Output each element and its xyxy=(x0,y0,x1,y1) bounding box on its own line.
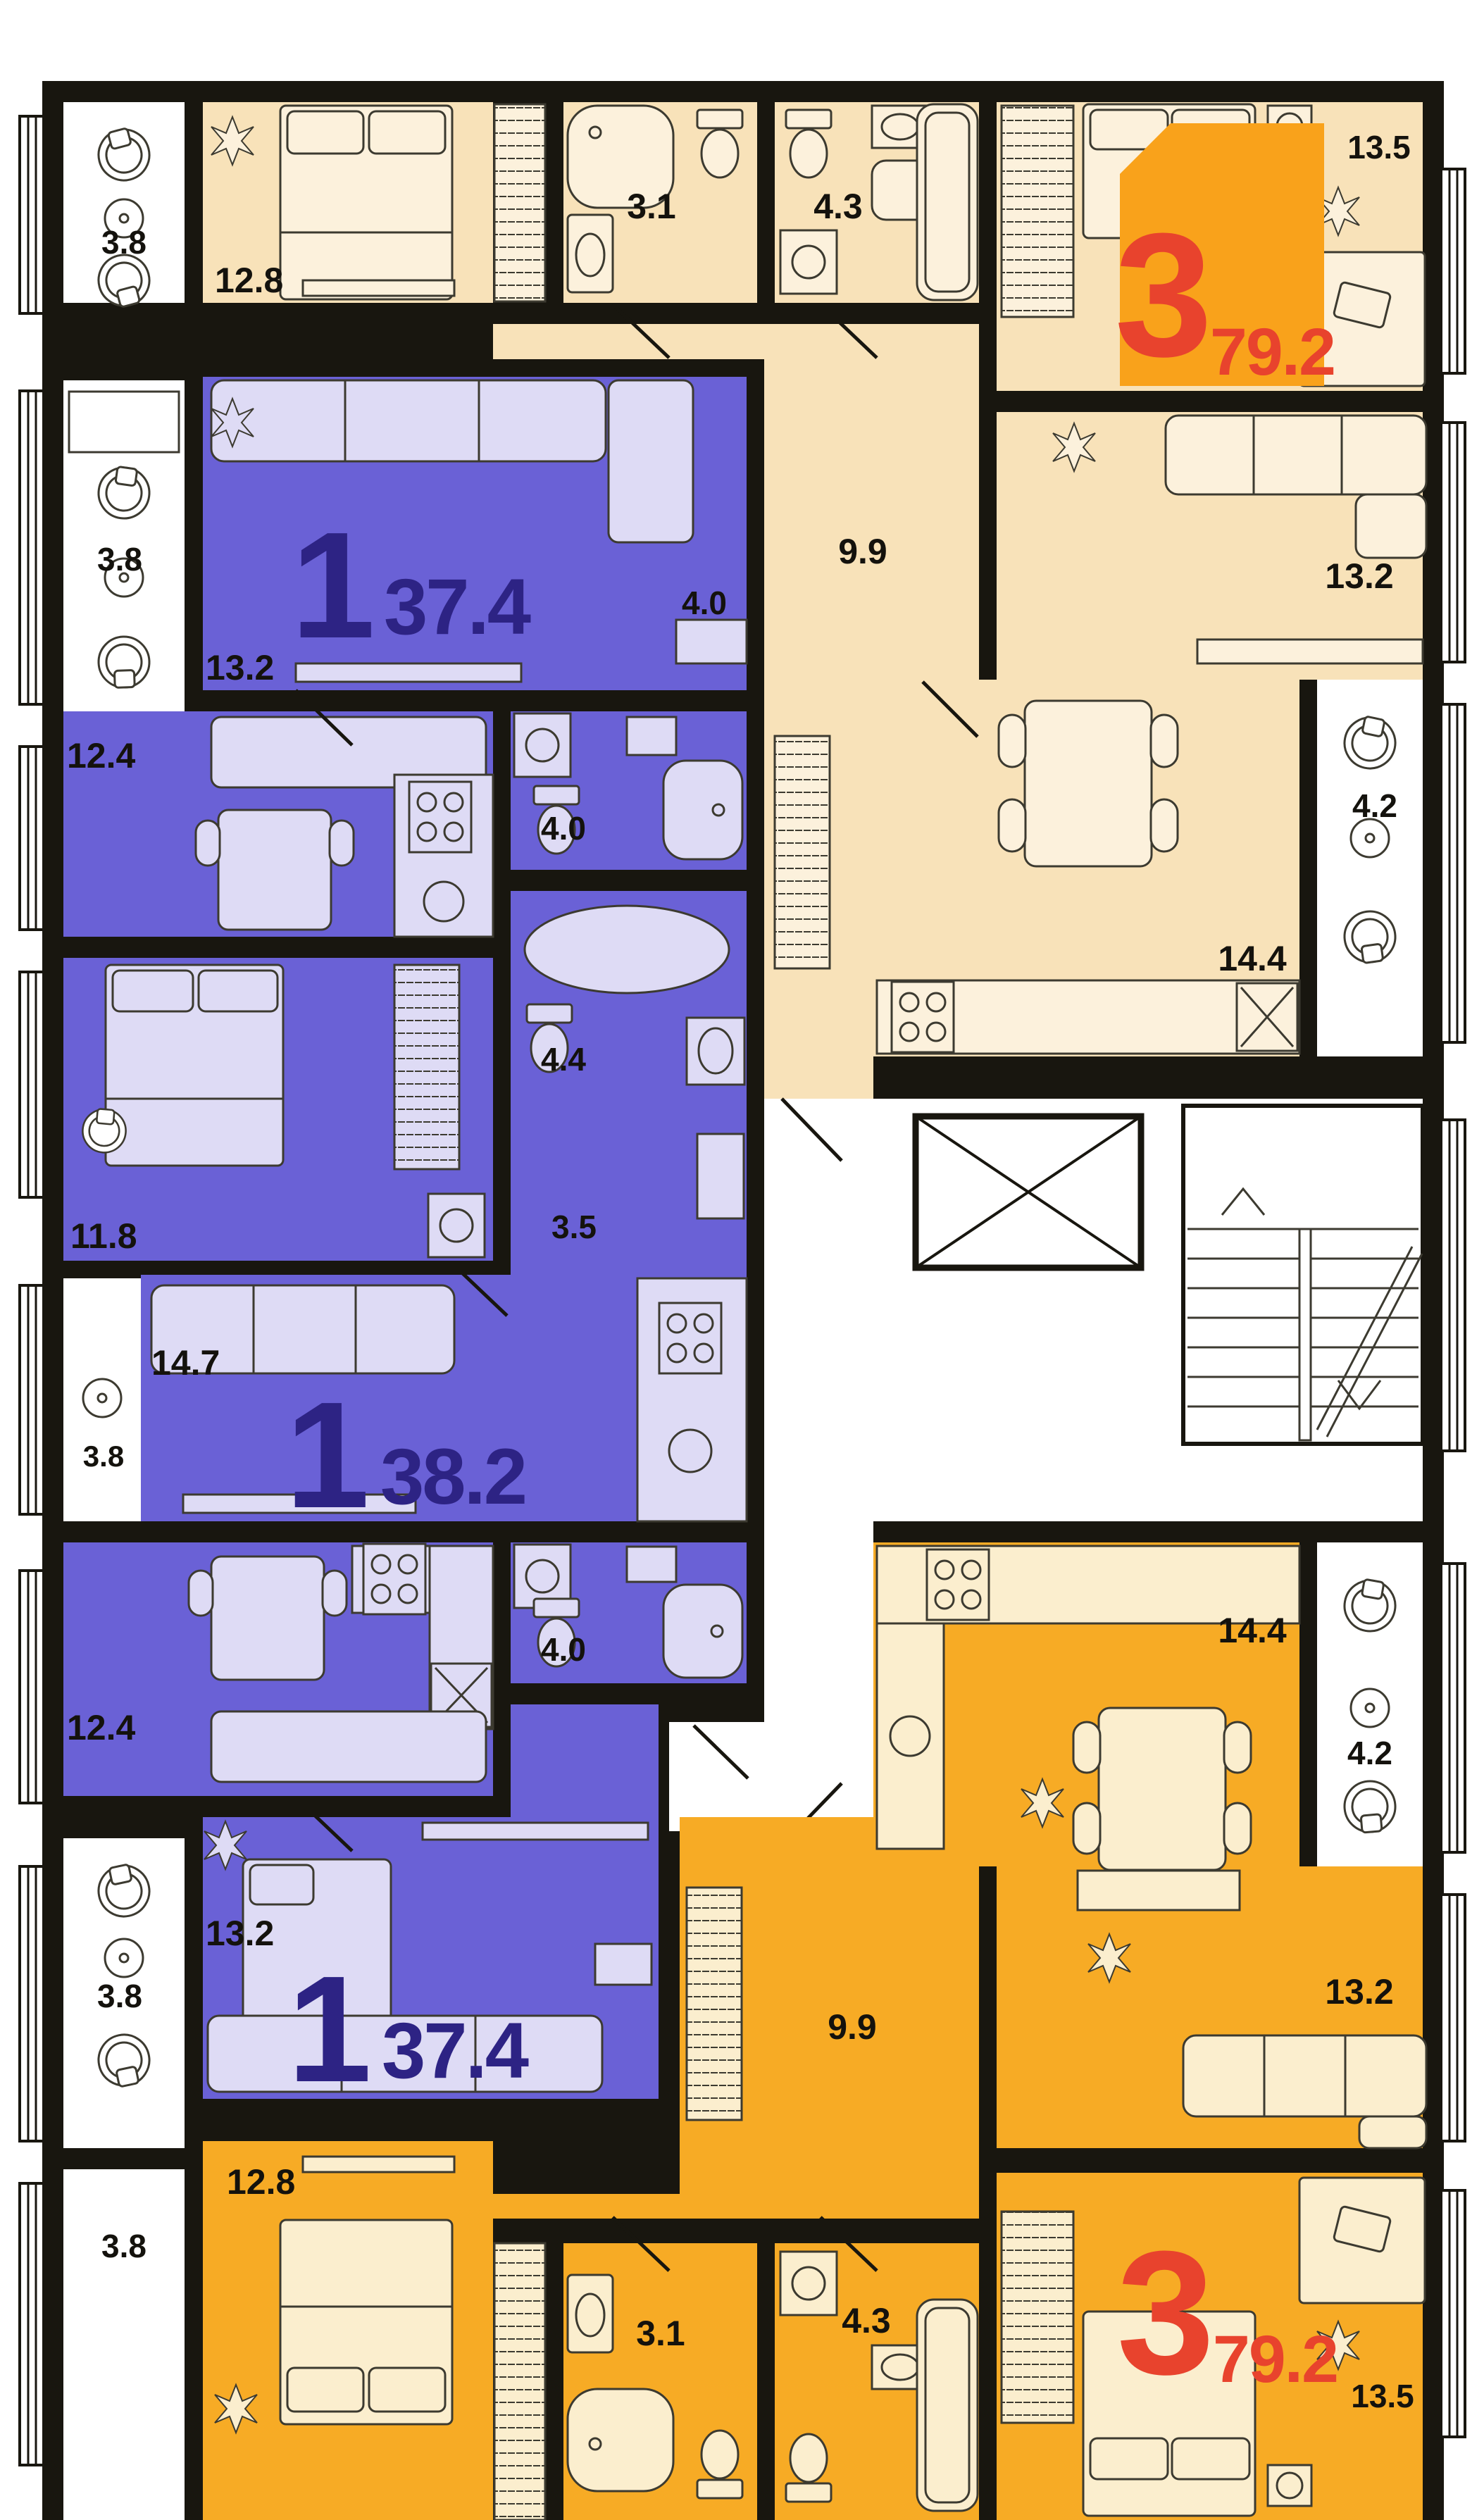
apartment-type-badge[interactable]: 3 79.2 xyxy=(1114,123,1334,393)
apartment-area: 38.2 xyxy=(380,1433,525,1521)
apartment-area: 79.2 xyxy=(1213,2322,1338,2397)
elevator xyxy=(916,1116,1141,1268)
room-hallway xyxy=(680,1817,873,1866)
apartment-type: 1 xyxy=(291,500,371,670)
apartment-area: 37.4 xyxy=(384,563,531,651)
area-label: 3.8 xyxy=(83,1440,124,1473)
floor-plan: 3.8 12.8 3.1 4.3 13.5 9.9 13.2 14.4 4.2 … xyxy=(0,0,1484,2520)
area-label: 13.2 xyxy=(1325,556,1393,596)
facade-windows-left xyxy=(20,116,44,2465)
area-label: 13.2 xyxy=(206,1914,274,1953)
area-label: 13.2 xyxy=(1325,1972,1393,2011)
area-label: 3.8 xyxy=(101,224,146,261)
closet xyxy=(494,2243,545,2520)
area-label: 12.4 xyxy=(67,736,136,775)
area-label: 4.3 xyxy=(842,2301,891,2340)
area-label: 4.0 xyxy=(541,810,586,847)
room-balcony xyxy=(63,2169,185,2520)
tv-stand xyxy=(303,280,454,296)
area-label: 4.0 xyxy=(682,585,727,621)
bed xyxy=(280,106,452,299)
area-label: 4.0 xyxy=(541,1631,586,1668)
area-label: 13.5 xyxy=(1351,2378,1414,2414)
room-hallway xyxy=(493,2194,873,2219)
area-label: 3.8 xyxy=(97,541,142,578)
apartment-1-room-middle[interactable]: 4.4 11.8 3.5 14.7 3.8 1 38.2 xyxy=(63,891,747,1540)
apartment-type: 1 xyxy=(287,1944,368,2114)
area-label: 9.9 xyxy=(828,2007,877,2047)
area-label: 14.4 xyxy=(1218,939,1287,978)
area-label: 3.8 xyxy=(101,2228,146,2264)
area-label: 14.4 xyxy=(1218,1611,1287,1650)
area-label: 4.2 xyxy=(1347,1735,1392,1771)
area-label: 4.4 xyxy=(541,1041,586,1078)
area-label: 12.8 xyxy=(215,261,283,300)
area-label: 3.5 xyxy=(551,1209,597,1245)
area-label: 13.5 xyxy=(1347,129,1411,166)
area-label: 3.8 xyxy=(97,1978,142,2014)
vestibule xyxy=(669,1722,764,1831)
apartment-1-room-bottom[interactable]: 12.4 4.0 13.2 3.8 1 37.4 xyxy=(63,1542,747,2148)
area-label: 3.1 xyxy=(627,187,676,226)
area-label: 13.2 xyxy=(206,648,274,687)
area-label: 14.7 xyxy=(151,1343,220,1383)
apartment-type: 1 xyxy=(285,1370,366,1540)
area-label: 4.2 xyxy=(1352,787,1397,824)
hall-wardrobe xyxy=(687,1888,742,2120)
area-label: 9.9 xyxy=(838,532,887,571)
apartment-area: 79.2 xyxy=(1210,315,1335,389)
closet xyxy=(494,104,545,301)
facade-windows-right xyxy=(1441,169,1465,2437)
area-label: 12.8 xyxy=(227,2162,295,2202)
area-label: 11.8 xyxy=(70,1216,137,1256)
staircase xyxy=(1183,1106,1423,1444)
apartment-1-room-top[interactable]: 3.8 13.2 4.0 12.4 4.0 1 37.4 xyxy=(63,377,747,937)
area-label: 4.3 xyxy=(813,187,863,226)
apartment-type: 3 xyxy=(1114,197,1212,393)
area-label: 12.4 xyxy=(67,1708,136,1747)
apartment-area: 37.4 xyxy=(382,2007,529,2095)
apartment-type: 3 xyxy=(1116,2214,1214,2411)
area-label: 3.1 xyxy=(636,2314,685,2353)
hall-wardrobe xyxy=(775,736,830,968)
hall-furniture xyxy=(697,1134,744,1218)
